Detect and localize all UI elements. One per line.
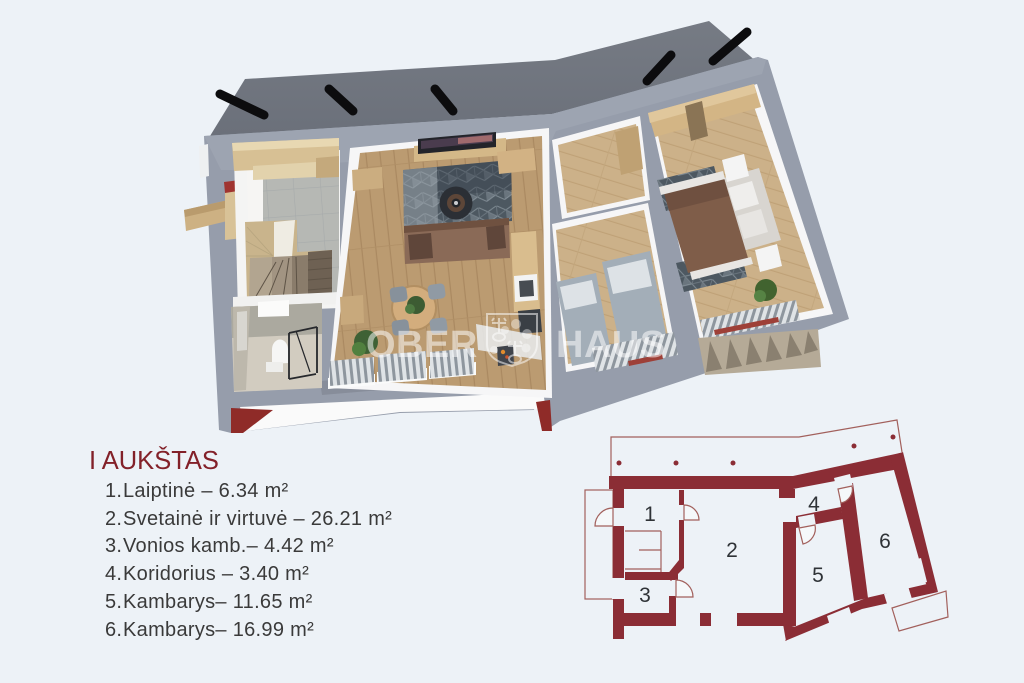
svg-text:2: 2 [726, 539, 738, 562]
svg-text:3: 3 [639, 584, 651, 607]
svg-text:6: 6 [879, 530, 891, 553]
svg-text:HAUS: HAUS [556, 324, 666, 366]
svg-text:1: 1 [644, 503, 656, 526]
svg-text:OBER: OBER [366, 324, 478, 366]
svg-text:5: 5 [812, 564, 824, 587]
svg-text:4: 4 [808, 493, 820, 516]
